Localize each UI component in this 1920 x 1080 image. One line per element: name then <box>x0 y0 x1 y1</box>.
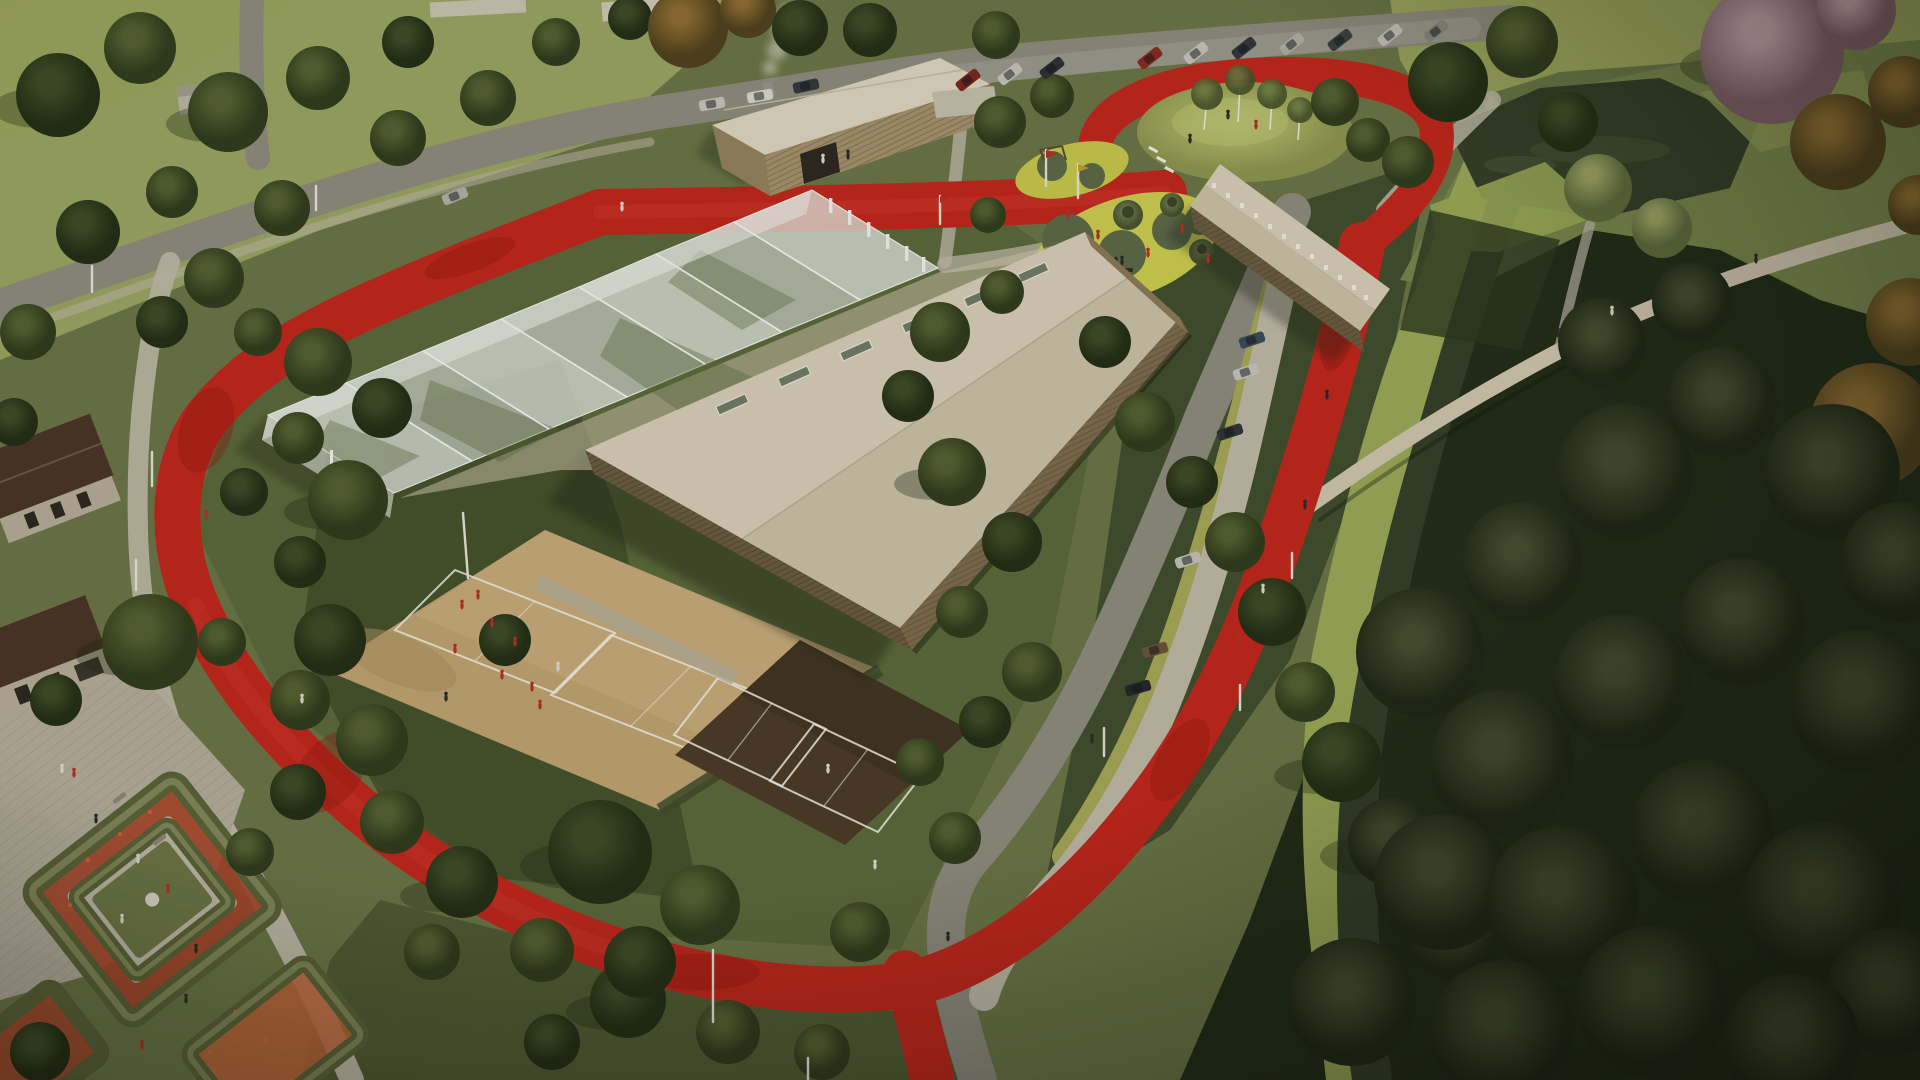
aerial-rendering <box>0 0 1920 1080</box>
vignette <box>0 0 1920 1080</box>
rendering-viewport: Aerial architectural rendering of a park… <box>0 0 1920 1080</box>
